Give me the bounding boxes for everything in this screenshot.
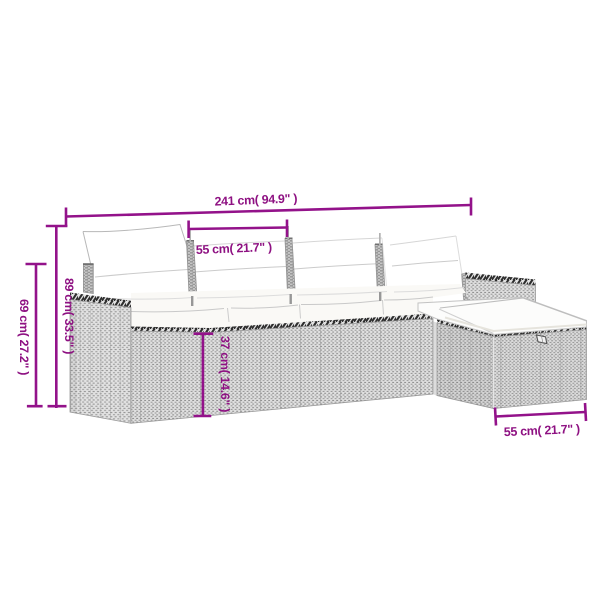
svg-text:37 cm( 14.6" ): 37 cm( 14.6" ) xyxy=(218,336,232,412)
svg-text:89 cm( 33.5" ): 89 cm( 33.5" ) xyxy=(62,278,76,354)
svg-text:69 cm( 27.2" ): 69 cm( 27.2" ) xyxy=(17,299,31,375)
